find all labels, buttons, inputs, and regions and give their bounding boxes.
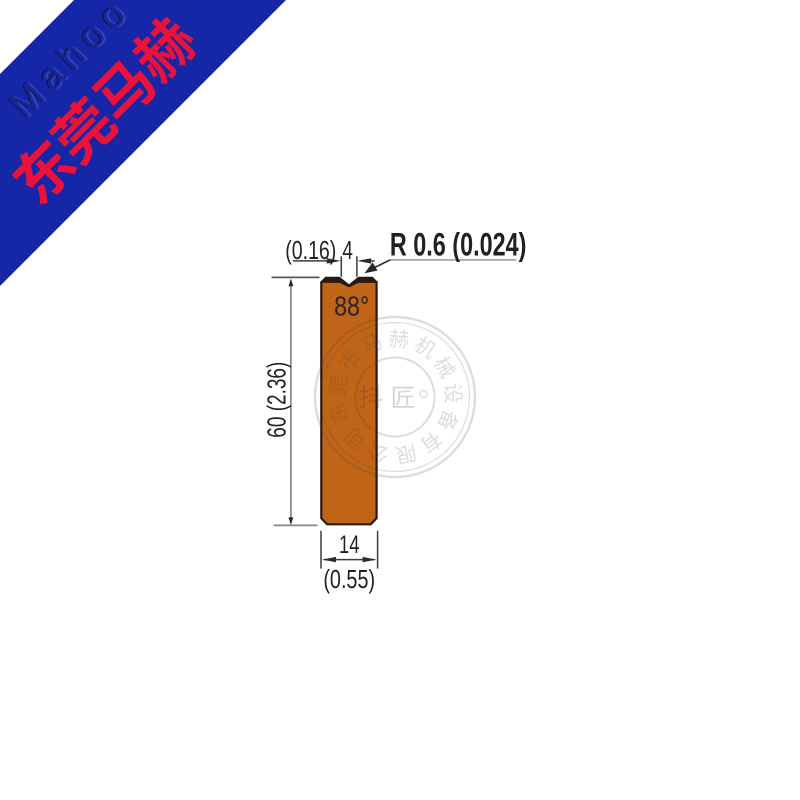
svg-text:88°: 88° (334, 290, 369, 321)
svg-text:60 (2.36): 60 (2.36) (263, 362, 291, 438)
svg-text:14: 14 (339, 531, 360, 559)
svg-text:(0.16): (0.16) (285, 237, 336, 265)
svg-text:R 0.6 (0.024): R 0.6 (0.024) (390, 227, 527, 263)
svg-text:(0.55): (0.55) (323, 566, 375, 594)
svg-text:4: 4 (342, 237, 353, 265)
